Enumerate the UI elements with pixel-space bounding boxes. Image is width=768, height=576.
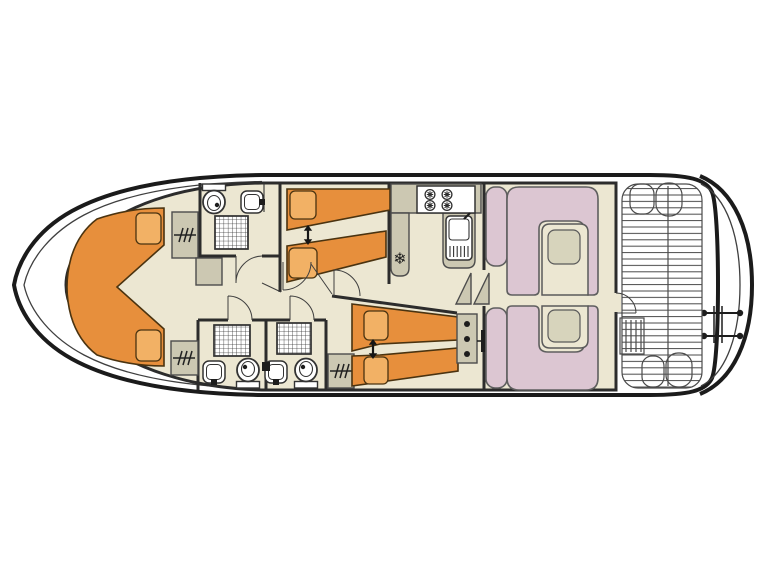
shower-grid-icon <box>214 325 250 356</box>
shower-grid-icon <box>277 323 311 354</box>
pillow <box>289 248 317 278</box>
washbasin-icon <box>203 361 225 385</box>
rail-knob <box>737 310 743 316</box>
pillow <box>136 330 161 361</box>
stove-burner-icon <box>425 190 435 200</box>
knob <box>464 321 470 327</box>
boat-floor-plan: ❄ <box>0 0 768 576</box>
deck-door-opening <box>611 293 621 312</box>
toilet-icon <box>237 359 260 389</box>
side-seat-cushion <box>486 308 507 388</box>
stove-burner-icon <box>425 201 435 211</box>
aft-deck <box>620 183 702 388</box>
stove-burner-icon <box>442 190 452 200</box>
toilet-icon <box>203 184 226 214</box>
shower-grid-icon <box>215 216 248 249</box>
washbasin-icon <box>241 191 265 213</box>
pillow <box>364 311 388 340</box>
rail-knob <box>737 333 743 339</box>
toilet-icon <box>295 359 318 389</box>
table-top-pad <box>548 310 580 342</box>
galley-sink <box>446 213 472 260</box>
pillow <box>290 191 316 219</box>
fridge-snowflake-icon: ❄ <box>393 249 406 268</box>
knob <box>464 336 470 342</box>
door-jamb <box>481 330 485 352</box>
plumbing-block <box>262 362 270 371</box>
pillow <box>364 357 388 384</box>
pillow <box>136 213 161 244</box>
cabinet-bow <box>196 258 222 285</box>
table-top-pad <box>548 230 580 264</box>
side-seat-cushion <box>486 187 507 266</box>
knob <box>464 351 470 357</box>
stove-burner-icon <box>442 201 452 211</box>
